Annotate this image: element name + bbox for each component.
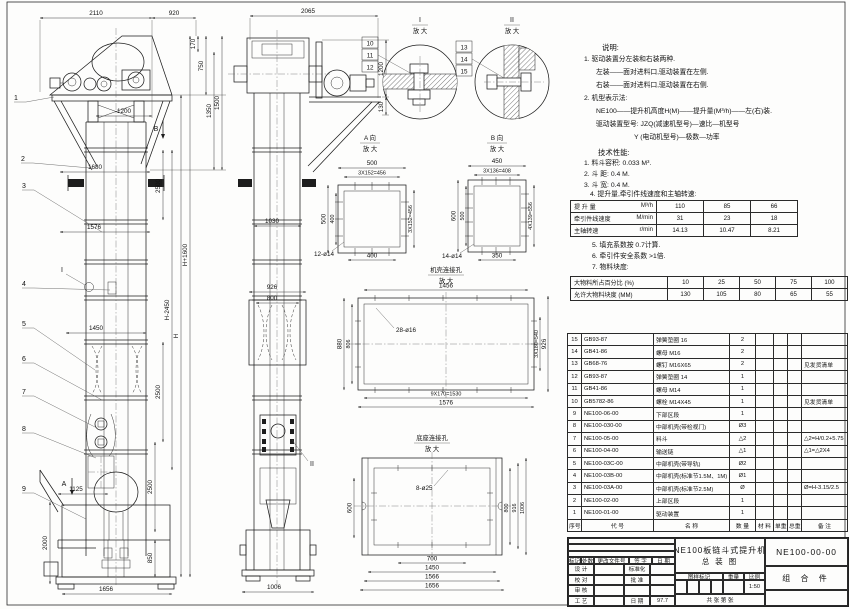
bom-row: 2NE100-02-00上部区段1 xyxy=(568,495,848,507)
dim-label: 600 xyxy=(451,210,458,221)
revision-header: 签 字 xyxy=(629,557,652,564)
dim-label: 600 xyxy=(347,502,354,513)
balloon-number: 5 xyxy=(22,321,26,328)
bom-header-row: 序号代 号名 称数 量材 料单重总重备 注 xyxy=(568,519,848,531)
dim-label: 400 xyxy=(330,215,336,224)
section-label: A xyxy=(62,481,67,488)
dim-label: 2500 xyxy=(147,480,154,495)
dim-label: 350 xyxy=(492,253,503,260)
sig-label: 设 计 xyxy=(568,564,594,575)
cell: 130 xyxy=(668,289,704,301)
balloon-number: 6 xyxy=(22,356,26,363)
dim-label: 1030 xyxy=(265,218,280,225)
bom-row: 4NE100-03B-00中部机壳(标准节1.5M、1M)Ø1 xyxy=(568,470,848,482)
dim-label: 2065 xyxy=(301,8,316,15)
side-view: II 2065 1200 130 1030 926 800 1006 xyxy=(228,8,389,592)
detail-i: I 放 大 10 11 12 xyxy=(362,17,458,119)
hole-callout: 8-ø25 xyxy=(416,485,433,492)
note-line: 2. 斗 距: 0.4 M. xyxy=(584,172,630,179)
dim-label: 850 xyxy=(147,552,154,563)
bom-row: 11GB41-86螺母 M141 xyxy=(568,383,848,395)
sheet-count: 共 张 第 张 xyxy=(675,594,765,606)
dim-label: 2110 xyxy=(89,10,103,17)
sig-label: 审 核 xyxy=(568,585,594,596)
title-block: 标记 处数 更改文件号 签 字 日 期 设 计 标准化 校 对 批 准 审 核 … xyxy=(567,537,849,607)
note-line: 右装——面对进料口,驱动装置在右侧. xyxy=(596,83,709,90)
sig-label: 标准化 xyxy=(624,564,650,575)
row-label: 允许大物料块度 (MM) xyxy=(571,289,668,301)
dim-label: 1656 xyxy=(425,583,440,590)
dim-label: 3X152=456 xyxy=(358,171,386,177)
cell: 75 xyxy=(776,277,812,289)
dim-label: 500 xyxy=(367,160,378,167)
cell: 85 xyxy=(704,201,751,213)
note-line: 1. 料斗容积: 0.033 M³. xyxy=(584,161,651,168)
dim-label: 700 xyxy=(427,556,438,563)
cell: 50 xyxy=(740,277,776,289)
row-unit: M/min xyxy=(636,214,655,221)
weight-label: 重量 xyxy=(723,573,744,580)
dim-label: 1456 xyxy=(439,283,454,290)
dim-label: 800 xyxy=(504,504,510,513)
sig-label: 批 准 xyxy=(624,575,650,586)
cell: 10.47 xyxy=(704,225,751,237)
bom-row: 8NE100-030-00中部机壳(带检视门)Ø3 xyxy=(568,420,848,432)
dim-label: 1500 xyxy=(214,96,221,111)
dim-label: 2500 xyxy=(155,385,162,400)
part-type: 组 合 件 xyxy=(765,566,848,590)
detail-subtitle: 放 大 xyxy=(505,26,520,35)
bom-row: 12GB93-87弹簧垫圈 141 xyxy=(568,371,848,383)
dim-label: 450 xyxy=(492,158,503,165)
dim-label: 400 xyxy=(367,253,378,260)
casing-holes-detail: 机壳连接孔 放 大 1456 880 806 3X180=540 926 9X1… xyxy=(337,265,549,407)
dim-label: 1006 xyxy=(520,502,526,514)
balloon-number: 7 xyxy=(22,389,26,396)
detail-marker: II xyxy=(310,461,314,468)
sig-label: 校 对 xyxy=(568,575,594,586)
bom-row: 13GB68-76螺钉 M16X652见发货清单 xyxy=(568,358,848,370)
dim-label: 4X139=556 xyxy=(528,202,534,230)
dim-label: 3X180=540 xyxy=(534,330,540,358)
detail-ii: II 放 大 13 14 15 xyxy=(456,17,549,119)
dim-label: 1450 xyxy=(425,565,440,572)
row-unit: M³/h xyxy=(641,202,655,209)
dim-label: 750 xyxy=(198,60,205,71)
dim-label: 880 xyxy=(337,338,344,349)
dim-label: 9X170=1530 xyxy=(431,392,462,398)
drawing-number: NE100-00-00 xyxy=(765,538,848,566)
balloon-number: 14 xyxy=(460,57,468,64)
balloon-number: 15 xyxy=(460,69,468,76)
bom-row: 3NE100-03A-00中部机壳(标准节2.5M)ØØ=H-3.15/2.5 xyxy=(568,482,848,494)
cell: 100 xyxy=(812,277,848,289)
balloon-number: 3 xyxy=(22,183,26,190)
detail-subtitle: 放 大 xyxy=(413,26,428,35)
tech-title: 技术性能: xyxy=(598,149,630,156)
drawing-title: NE100板链斗式提升机 xyxy=(675,545,765,556)
balloon-number: 1 xyxy=(14,95,18,102)
dim-label: 3X136=408 xyxy=(483,169,511,175)
cell: 105 xyxy=(704,289,740,301)
dim-label: H xyxy=(173,333,180,338)
sig-label: 工 艺 xyxy=(568,596,594,607)
detail-marker: I xyxy=(61,267,63,274)
bom-row: 9NE100-06-00下部区段1 xyxy=(568,408,848,420)
detail-title: 机壳连接孔 xyxy=(430,265,462,274)
row-label: 牵引件线速度 xyxy=(574,216,611,223)
dim-label: 1680 xyxy=(88,164,103,171)
row-label: 提 升 量 xyxy=(574,204,596,211)
scale-label: 比例 xyxy=(744,573,765,580)
note-line: 4. 提升量,牵引件线速度和主轴转速: xyxy=(590,192,697,199)
cell: 65 xyxy=(776,289,812,301)
hole-callout: 14-ø14 xyxy=(442,253,462,260)
balloon-number: 11 xyxy=(367,53,374,60)
dim-label: 806 xyxy=(346,340,352,349)
balloon-number: 12 xyxy=(366,65,374,72)
dim-label: 926 xyxy=(267,284,278,291)
revision-header: 处数 xyxy=(581,557,594,564)
dim-label: 1576 xyxy=(439,400,454,407)
hole-callout: 12-ø14 xyxy=(314,251,334,258)
notes-title: 说明: xyxy=(602,44,619,51)
dim-label: 800 xyxy=(267,295,278,302)
detail-title: A 向 xyxy=(364,133,376,142)
dim-label: H-2450 xyxy=(164,299,171,320)
note-line: NE100——提升机高度H(M)——提升量(M³/h)——左(右)装. xyxy=(596,109,772,116)
dim-label: 1656 xyxy=(99,586,114,593)
note-line: 左装——面对进料口,驱动装置在左侧. xyxy=(596,70,709,77)
note-line: 2. 机型表示法: xyxy=(584,96,627,103)
balloon-number: 8 xyxy=(22,426,26,433)
sig-label: 日 期 xyxy=(624,596,650,607)
scale-value: 1:50 xyxy=(744,580,765,594)
mark-label: 图样标记 xyxy=(675,573,723,580)
view-a-detail: A 向 放 大 500 3X152=456 500 400 400 3X152=… xyxy=(314,133,414,260)
bom-row: 1NE100-01-00驱动装置1 xyxy=(568,507,848,519)
cell: 55 xyxy=(812,289,848,301)
detail-title: I xyxy=(419,17,421,24)
row-label: 大物料所占百分比 (%) xyxy=(571,277,668,289)
dim-label: 1006 xyxy=(267,584,282,591)
row-unit: r/min xyxy=(639,226,655,233)
balloon-number: 9 xyxy=(22,486,26,493)
row-label: 主轴转速 xyxy=(574,228,598,235)
table-row: 允许大物料块度 (MM)130105806555 xyxy=(571,289,848,301)
cell: 8.21 xyxy=(751,225,798,237)
dim-label: 130 xyxy=(378,101,385,112)
balloon-number: 13 xyxy=(460,45,468,52)
dim-label: 3X152=456 xyxy=(408,205,414,233)
revision-header: 更改文件号 xyxy=(594,557,629,564)
detail-subtitle: 放 大 xyxy=(490,144,505,153)
section-label: B xyxy=(154,126,159,133)
cell: 31 xyxy=(657,213,704,225)
table-row: 牵引件线速度M/min312318 xyxy=(571,213,798,225)
dim-label: 170 xyxy=(190,38,197,49)
date-value: 97.7 xyxy=(650,596,675,607)
revision-header: 标记 xyxy=(568,557,581,564)
detail-title: B 向 xyxy=(491,133,503,142)
note-line: 驱动装置型号: JZQ(减速机型号)—速比—机型号 xyxy=(596,122,739,129)
note-line: 5. 填充系数按 0.7计算. xyxy=(592,243,660,250)
balloon-number: 10 xyxy=(366,41,374,48)
dim-label: 920 xyxy=(169,10,180,17)
detail-title: 底座连接孔 xyxy=(416,433,448,442)
front-view: 2110 920 170 750 1350 1500 1200 B 1680 2… xyxy=(14,10,226,594)
bom-row: 6NE100-04-00输送链△1△1=△2X4 xyxy=(568,445,848,457)
lump-size-table: 大物料所占百分比 (%)10255075100 允许大物料块度 (MM)1301… xyxy=(570,276,848,301)
note-line: 6. 牵引件安全系数 >1倍. xyxy=(592,254,665,261)
cell: 10 xyxy=(668,277,704,289)
dim-label: 500 xyxy=(460,212,466,221)
drawing-sheet: 2110 920 170 750 1350 1500 1200 B 1680 2… xyxy=(0,0,850,609)
table-row: 提 升 量M³/h1108566 xyxy=(571,201,798,213)
dim-label: 1566 xyxy=(425,574,440,581)
dim-label: 1576 xyxy=(87,224,102,231)
cell: 80 xyxy=(740,289,776,301)
balloon-number: 2 xyxy=(21,156,25,163)
bom-row: 14GB41-86螺母 M162 xyxy=(568,346,848,358)
bom-table: 15GB93-87弹簧垫圈 162 14GB41-86螺母 M162 13GB6… xyxy=(567,333,848,532)
cell: 110 xyxy=(657,201,704,213)
dim-label: 1450 xyxy=(89,325,104,332)
dim-label: 916 xyxy=(512,504,518,513)
detail-subtitle: 放 大 xyxy=(363,144,378,153)
table-row: 主轴转速r/min14.1310.478.21 xyxy=(571,225,798,237)
revision-header: 日 期 xyxy=(652,557,675,564)
bom-row: 10GB5782-86螺栓 M14X451见发货清单 xyxy=(568,395,848,407)
dim-label: 926 xyxy=(541,338,548,349)
dim-label: H+1600 xyxy=(182,243,189,266)
detail-subtitle: 放 大 xyxy=(425,444,440,453)
base-holes-detail: 底座连接孔 放 大 600 800 916 1006 700 1450 1566… xyxy=(347,433,527,590)
detail-title: II xyxy=(510,17,514,24)
dim-label: 500 xyxy=(321,213,328,224)
bom-row: 15GB93-87弹簧垫圈 162 xyxy=(568,334,848,346)
dim-label: 1200 xyxy=(117,108,132,115)
dim-label: 2000 xyxy=(42,536,49,551)
note-line: 3. 斗 宽: 0.4 M. xyxy=(584,183,630,190)
bom-row: 7NE100-05-00料斗△2△2=H/0.2+5.75 xyxy=(568,433,848,445)
note-line: 7. 物料块度: xyxy=(592,265,629,272)
cell: 23 xyxy=(704,213,751,225)
note-line: Y (电动机型号)—极数—功率 xyxy=(634,135,720,142)
view-b-detail: B 向 放 大 450 3X136=408 600 500 4X139=556 … xyxy=(442,133,534,260)
cell: 18 xyxy=(751,213,798,225)
bom-row: 5NE100-03C-00中部机壳(带导轨)Ø2 xyxy=(568,457,848,469)
sig-label xyxy=(624,585,650,596)
performance-table: 提 升 量M³/h1108566 牵引件线速度M/min312318 主轴转速r… xyxy=(570,200,798,237)
cell: 66 xyxy=(751,201,798,213)
dim-label: 1350 xyxy=(206,104,213,119)
cell: 25 xyxy=(704,277,740,289)
drawing-subtitle: 总 装 图 xyxy=(702,556,738,567)
hole-callout: 28-ø16 xyxy=(396,327,416,334)
table-row: 大物料所占百分比 (%)10255075100 xyxy=(571,277,848,289)
cell: 14.13 xyxy=(657,225,704,237)
note-line: 1. 驱动装置分左装和右装两种. xyxy=(584,57,675,64)
dim-label: 2500 xyxy=(155,179,162,194)
balloon-number: 4 xyxy=(22,281,26,288)
